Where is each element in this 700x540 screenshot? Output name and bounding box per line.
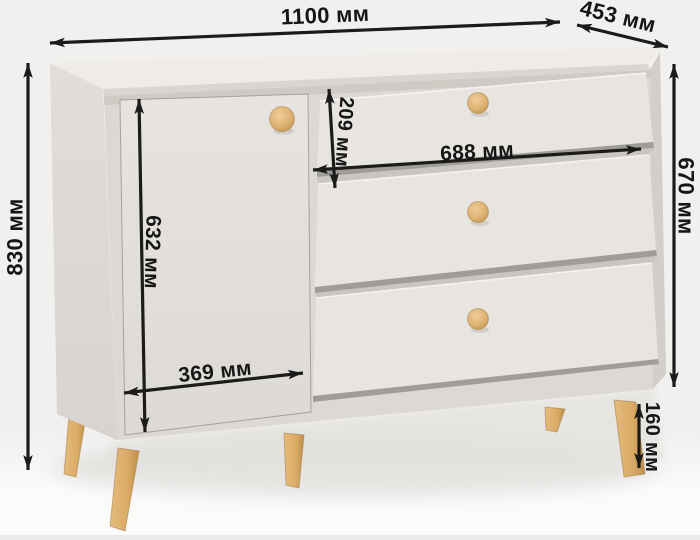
door-knob bbox=[270, 107, 295, 132]
drawer-3-knob bbox=[468, 309, 489, 330]
dim-height-label: 830 мм bbox=[3, 198, 28, 275]
dim-width-label: 1100 мм bbox=[280, 1, 369, 30]
dimension-diagram: 1100 мм 453 мм 830 мм 670 мм 160 мм 209 … bbox=[0, 0, 700, 540]
drawer-2-knob bbox=[468, 202, 489, 223]
dim-leg-height-label: 160 мм bbox=[641, 402, 663, 472]
floor-edge-strip bbox=[0, 535, 700, 540]
dim-body-height-label: 670 мм bbox=[673, 157, 698, 234]
dim-door-height-label: 632 мм bbox=[140, 215, 165, 289]
dim-drawer-width-label: 688 мм bbox=[440, 138, 515, 165]
drawer-1-knob bbox=[468, 93, 489, 114]
